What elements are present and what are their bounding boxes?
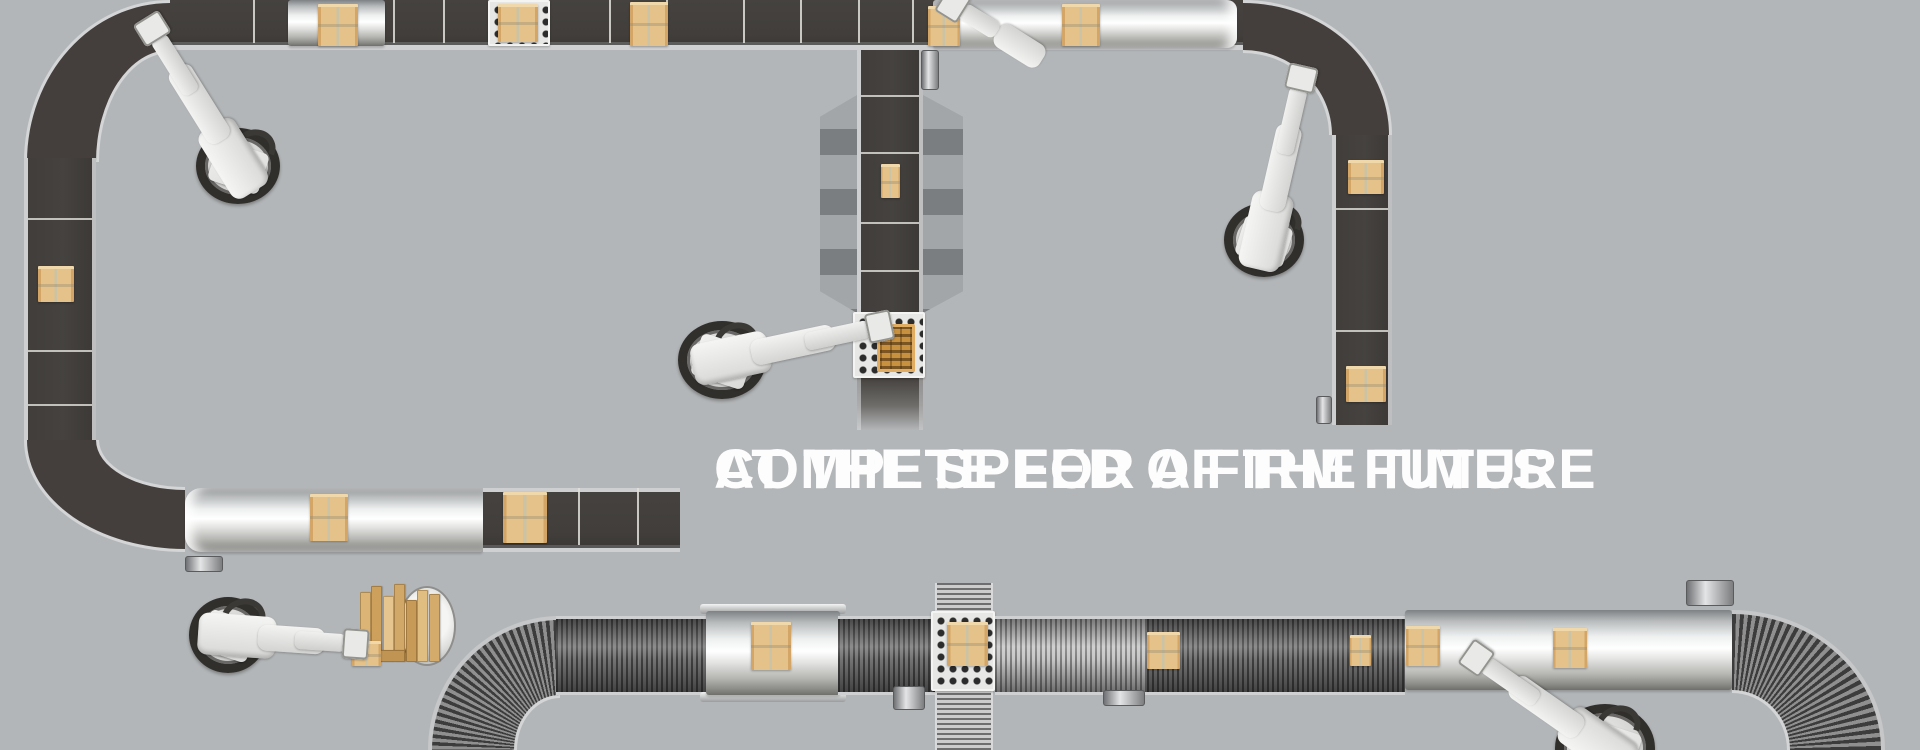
cardboard-box: [318, 4, 358, 46]
robot-forearm: [294, 631, 346, 653]
cardboard-box: [310, 494, 348, 541]
sorter-panel-right: [923, 95, 963, 313]
plank: [429, 594, 440, 662]
belt-divider: [393, 0, 395, 43]
cardboard-box: [38, 266, 74, 302]
cardboard-box: [1350, 635, 1371, 666]
belt-divider: [743, 0, 745, 43]
belt-divider: [578, 488, 580, 545]
cardboard-box: [1147, 632, 1180, 669]
belt-divider: [861, 270, 919, 272]
conveyor-bottom-c: [995, 616, 1147, 695]
cardboard-box: [881, 164, 900, 198]
tube-clamp: [1686, 580, 1734, 606]
right-belt-device: [1316, 396, 1332, 424]
cardboard-box: [1406, 626, 1440, 666]
belt-divider: [800, 0, 802, 43]
factory-hero-banner: COMPETE FOR A FIRM FUTURE AT THE SPEED O…: [0, 0, 1920, 750]
sorter-panel-left: [820, 95, 857, 313]
conveyor-bottom-b: [838, 616, 935, 695]
plank: [417, 590, 428, 662]
belt-divider: [637, 488, 639, 545]
hero-headline-line2: AT THE SPEED OF THE TIMES: [714, 436, 1550, 502]
factory-scene: [0, 0, 1920, 750]
cardboard-box: [630, 2, 668, 46]
junction-branch-bottom: [935, 688, 993, 750]
conveyor-curve-left-bottom: [24, 440, 185, 552]
conveyor-middle-end: [857, 376, 923, 430]
conveyor-foot: [185, 556, 223, 572]
cardboard-box: [751, 622, 791, 670]
plank: [406, 600, 417, 662]
cardboard-box: [1348, 160, 1384, 194]
belt-divider: [253, 0, 255, 43]
belt-sensor: [1103, 690, 1145, 706]
cardboard-box: [1553, 628, 1587, 668]
robot-gripper: [342, 628, 370, 660]
cardboard-box: [498, 4, 538, 42]
belt-divider: [443, 0, 445, 43]
belt-divider: [609, 0, 611, 43]
junction-motor: [893, 686, 925, 710]
belt-divider: [858, 0, 860, 43]
belt-divider: [912, 0, 914, 43]
belt-divider: [28, 218, 92, 220]
cardboard-box: [1346, 366, 1386, 402]
cardboard-box: [503, 492, 547, 543]
middle-belt-device: [921, 50, 939, 90]
belt-divider: [861, 222, 919, 224]
belt-divider: [861, 95, 919, 97]
cardboard-box: [947, 622, 988, 666]
belt-divider: [861, 152, 919, 154]
belt-divider: [28, 404, 92, 406]
conveyor-curve-bottom-right: [1732, 610, 1885, 750]
conveyor-bottom-a: [556, 616, 716, 695]
belt-divider: [1336, 330, 1388, 332]
belt-divider: [1336, 208, 1388, 210]
belt-divider: [28, 350, 92, 352]
cardboard-box: [1062, 4, 1100, 46]
conveyor-curve-top-right: [1243, 0, 1392, 135]
